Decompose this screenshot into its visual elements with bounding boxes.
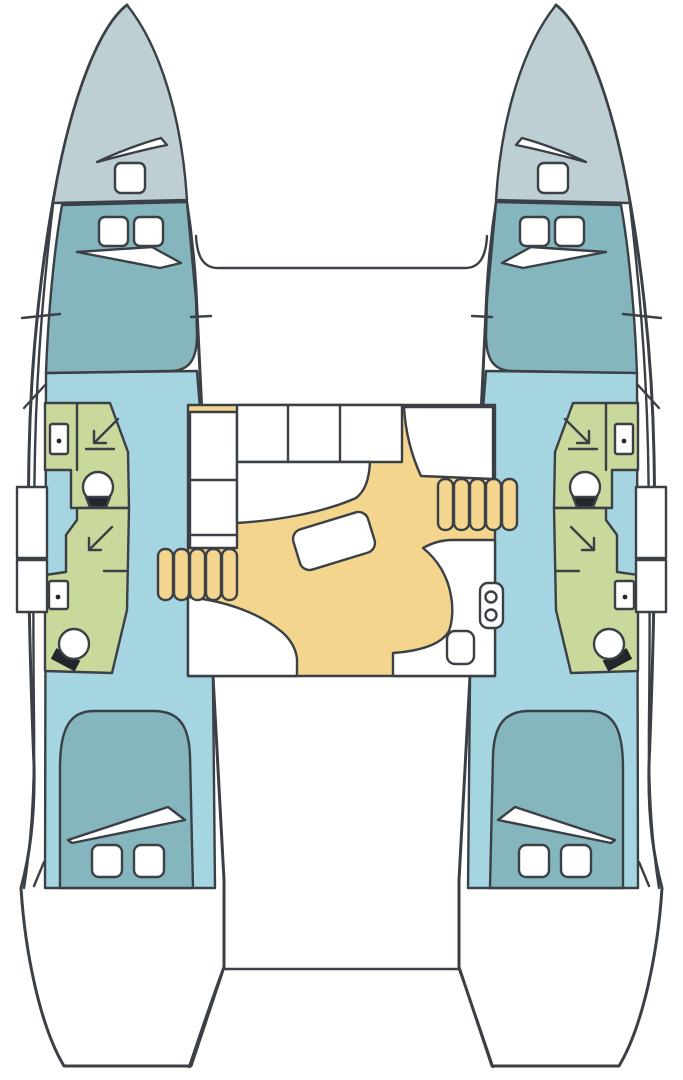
step <box>438 479 453 530</box>
bow-hatch-icon <box>115 163 145 193</box>
foredeck-coachroof-line <box>196 236 487 268</box>
step <box>158 549 173 600</box>
step <box>206 549 221 600</box>
aft-berth <box>60 711 193 888</box>
toilet-icon <box>83 472 113 507</box>
berth-hatch-icon <box>92 845 122 877</box>
step <box>454 479 469 530</box>
sink-icon <box>49 581 68 609</box>
step <box>190 549 205 600</box>
step <box>222 549 237 600</box>
boarding-gate <box>17 560 47 612</box>
step <box>470 479 485 530</box>
boarding-gate <box>17 487 47 558</box>
settee-back <box>237 405 402 462</box>
bulkhead-mark <box>191 316 211 317</box>
galley-hatch-icon <box>447 631 474 664</box>
step <box>502 479 517 530</box>
berth-hatch-icon <box>99 217 128 246</box>
cockpit-edge <box>189 969 493 1067</box>
nav-seat <box>404 407 493 479</box>
sink-icon <box>50 424 68 454</box>
berth-hatch-icon <box>134 845 164 877</box>
step <box>486 479 501 530</box>
step <box>174 549 189 600</box>
catamaran-floor-plan <box>0 0 683 1080</box>
galley-sink-icon <box>480 583 503 628</box>
stairs-port <box>158 549 237 600</box>
stairs-starboard <box>438 479 517 530</box>
berth-hatch-icon <box>134 217 163 246</box>
catamaran-floor-plan-page <box>0 0 683 1080</box>
